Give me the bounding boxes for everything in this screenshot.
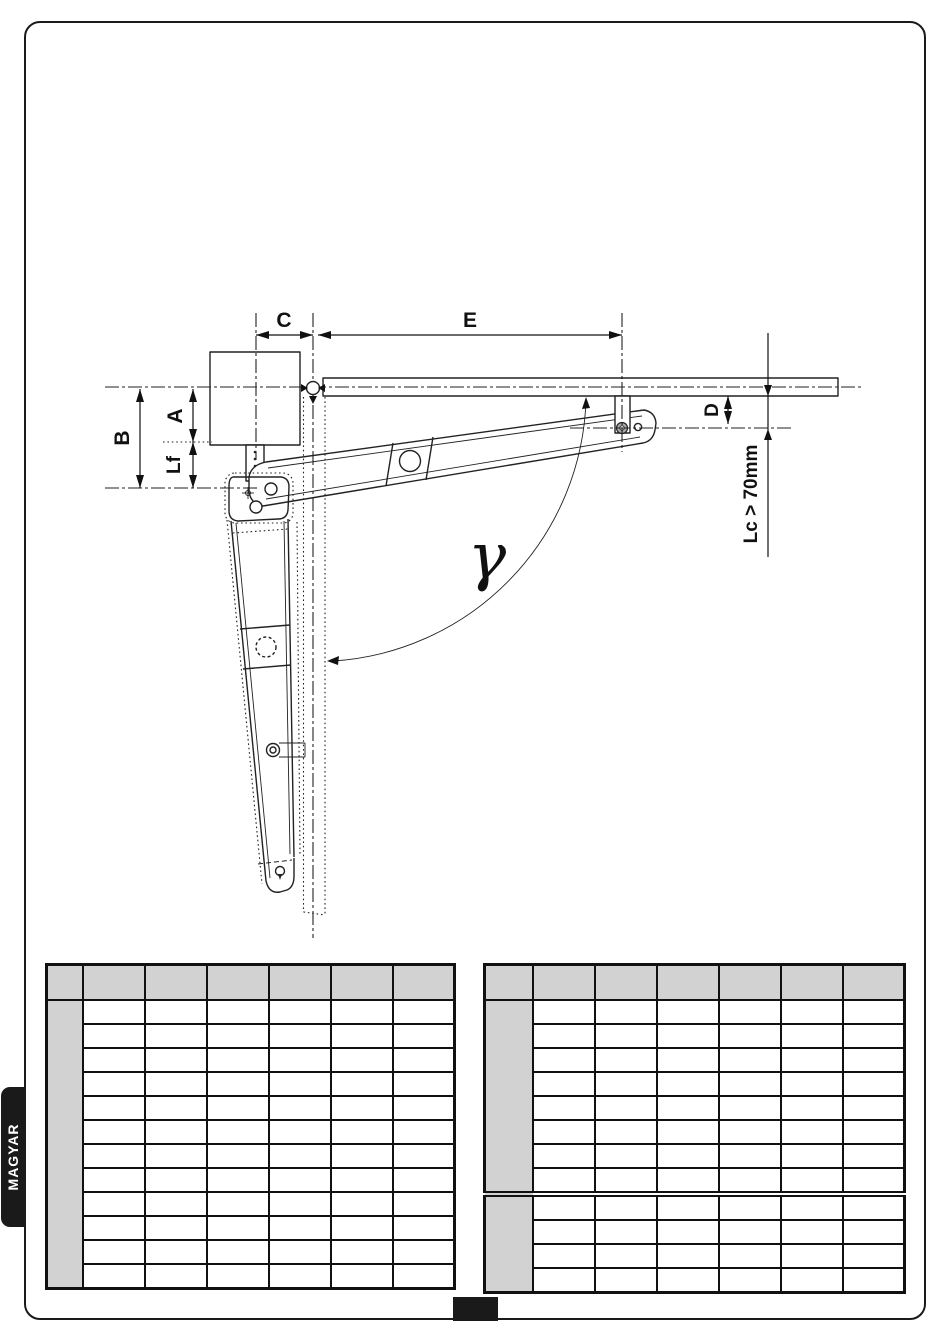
table-cell: [331, 1048, 393, 1072]
table-cell: [269, 1216, 331, 1240]
table-row: [485, 1244, 905, 1268]
dimension-table-left: [45, 963, 456, 1290]
table-row: [485, 1168, 905, 1194]
table-cell: [657, 1268, 719, 1293]
table-cell: [207, 1120, 269, 1144]
table-header-cell: [269, 965, 331, 1001]
table-cell: [269, 1048, 331, 1072]
table-row: [47, 1168, 455, 1192]
table-cell: [269, 1120, 331, 1144]
table-cell: [207, 1168, 269, 1192]
table-cell: [331, 1072, 393, 1096]
table-row: [485, 1072, 905, 1096]
table-cell: [331, 1168, 393, 1192]
table-cell: [843, 1024, 905, 1048]
table-cell: [657, 1194, 719, 1220]
table-cell: [83, 1144, 145, 1168]
table-row-group-cell: [485, 1000, 533, 1194]
dim-label-lf: Lf: [164, 455, 185, 474]
dim-label-e: E: [463, 309, 477, 332]
table-cell: [533, 1048, 595, 1072]
dim-label-b: B: [111, 430, 134, 445]
table-cell: [83, 1072, 145, 1096]
table-cell: [393, 1024, 455, 1048]
table-cell: [393, 1144, 455, 1168]
table-header-cell: [657, 965, 719, 1001]
table-cell: [145, 1216, 207, 1240]
table-row: [47, 1192, 455, 1216]
table-header-cell: [781, 965, 843, 1001]
table-row: [485, 1268, 905, 1293]
table-cell: [331, 1000, 393, 1024]
table-cell: [781, 1024, 843, 1048]
table-header-cell: [533, 965, 595, 1001]
table-cell: [393, 1192, 455, 1216]
page-number-block: [453, 1297, 498, 1321]
table-cell: [719, 1072, 781, 1096]
table-cell: [145, 1192, 207, 1216]
table-row: [47, 1144, 455, 1168]
table-cell: [595, 1072, 657, 1096]
table-cell: [83, 1120, 145, 1144]
table-cell: [207, 1240, 269, 1264]
table-cell: [719, 1244, 781, 1268]
table-cell: [145, 1048, 207, 1072]
table-cell: [595, 1120, 657, 1144]
table-cell: [781, 1072, 843, 1096]
table-cell: [207, 1096, 269, 1120]
table-cell: [145, 1168, 207, 1192]
table-cell: [269, 1072, 331, 1096]
table-cell: [719, 1144, 781, 1168]
table-cell: [657, 1168, 719, 1194]
table-row-group-cell: [485, 1194, 533, 1293]
table-row: [47, 1072, 455, 1096]
table-cell: [533, 1220, 595, 1244]
table-cell: [331, 1240, 393, 1264]
table-cell: [595, 1220, 657, 1244]
table-cell: [83, 1000, 145, 1024]
table-cell: [393, 1264, 455, 1289]
table-cell: [269, 1096, 331, 1120]
table-cell: [83, 1192, 145, 1216]
table-row: [485, 1000, 905, 1024]
table-cell: [657, 1024, 719, 1048]
dim-label-lc: Lc > 70mm: [741, 445, 762, 544]
table-cell: [843, 1096, 905, 1120]
table-cell: [843, 1120, 905, 1144]
language-tab: MAGYAR: [1, 1087, 24, 1227]
table-cell: [393, 1216, 455, 1240]
table-cell: [781, 1096, 843, 1120]
table-cell: [269, 1024, 331, 1048]
dimension-a: A: [164, 389, 193, 442]
swing-arm-vertical: [225, 473, 305, 892]
table-cell: [843, 1168, 905, 1194]
table-cell: [533, 1120, 595, 1144]
table-cell: [83, 1048, 145, 1072]
table-cell: [145, 1072, 207, 1096]
table-cell: [595, 1168, 657, 1194]
table-row: [47, 1240, 455, 1264]
table-cell: [781, 1168, 843, 1194]
table-cell: [331, 1120, 393, 1144]
table-row: [47, 1048, 455, 1072]
table-row: [485, 1096, 905, 1120]
table-cell: [145, 1120, 207, 1144]
table-header-cell: [843, 965, 905, 1001]
table-cell: [331, 1264, 393, 1289]
table-cell: [533, 1024, 595, 1048]
table-cell: [393, 1048, 455, 1072]
table-cell: [533, 1096, 595, 1120]
table-header-cell: [83, 965, 145, 1001]
table-cell: [145, 1240, 207, 1264]
language-tab-label: MAGYAR: [5, 1124, 21, 1191]
table-cell: [533, 1244, 595, 1268]
table-cell: [781, 1120, 843, 1144]
table-cell: [393, 1168, 455, 1192]
table-cell: [595, 1244, 657, 1268]
table-header-cell: [595, 965, 657, 1001]
table-cell: [843, 1144, 905, 1168]
table-cell: [269, 1240, 331, 1264]
table-cell: [533, 1000, 595, 1024]
table-cell: [331, 1024, 393, 1048]
table-cell: [533, 1268, 595, 1293]
dimension-table: [483, 963, 906, 1294]
table-cell: [331, 1096, 393, 1120]
table-cell: [657, 1096, 719, 1120]
table-header-cell: [719, 965, 781, 1001]
table-cell: [843, 1048, 905, 1072]
table-cell: [207, 1072, 269, 1096]
table-cell: [595, 1144, 657, 1168]
table-cell: [843, 1072, 905, 1096]
dimension-lf: Lf: [164, 442, 193, 488]
table-cell: [781, 1220, 843, 1244]
table-row: [47, 1216, 455, 1240]
table-cell: [719, 1194, 781, 1220]
hinge-axis: [301, 382, 325, 405]
dimension-table-right: [483, 963, 906, 1294]
table-cell: [657, 1244, 719, 1268]
table-cell: [657, 1144, 719, 1168]
table-row: [47, 1264, 455, 1289]
table-header-cell: [331, 965, 393, 1001]
table-cell: [657, 1072, 719, 1096]
table-cell: [657, 1000, 719, 1024]
dimension-table: [45, 963, 456, 1290]
installation-diagram: C E B A Lf D Lc > 70mm γ: [0, 0, 950, 960]
table-header-cell: [485, 965, 533, 1001]
table-row: [47, 1024, 455, 1048]
table-cell: [269, 1192, 331, 1216]
dimension-d: D: [702, 396, 728, 424]
table-cell: [331, 1216, 393, 1240]
table-cell: [657, 1220, 719, 1244]
table-row: [47, 1120, 455, 1144]
table-cell: [145, 1144, 207, 1168]
table-cell: [83, 1024, 145, 1048]
table-row-group-cell: [47, 1000, 83, 1289]
table-cell: [83, 1216, 145, 1240]
table-cell: [207, 1264, 269, 1289]
table-row: [485, 1120, 905, 1144]
table-cell: [533, 1072, 595, 1096]
dim-label-a: A: [164, 408, 187, 423]
table-cell: [393, 1096, 455, 1120]
dimension-e: E: [318, 309, 622, 335]
table-row: [485, 1220, 905, 1244]
table-cell: [595, 1000, 657, 1024]
table-cell: [393, 1120, 455, 1144]
table-cell: [719, 1168, 781, 1194]
table-cell: [781, 1194, 843, 1220]
dimension-lc: Lc > 70mm: [741, 333, 772, 557]
table-cell: [331, 1144, 393, 1168]
table-cell: [657, 1048, 719, 1072]
table-row: [485, 1048, 905, 1072]
table-cell: [83, 1240, 145, 1264]
table-cell: [207, 1048, 269, 1072]
table-cell: [83, 1096, 145, 1120]
table-header-cell: [145, 965, 207, 1001]
table-cell: [145, 1264, 207, 1289]
table-cell: [533, 1168, 595, 1194]
table-cell: [843, 1244, 905, 1268]
table-cell: [595, 1096, 657, 1120]
angle-label-gamma: γ: [468, 520, 507, 594]
dimension-b: B: [111, 389, 140, 488]
table-cell: [207, 1144, 269, 1168]
table-cell: [719, 1048, 781, 1072]
table-cell: [145, 1000, 207, 1024]
table-row: [47, 1000, 455, 1024]
table-cell: [657, 1120, 719, 1144]
table-cell: [595, 1194, 657, 1220]
table-cell: [719, 1096, 781, 1120]
table-cell: [595, 1048, 657, 1072]
table-cell: [533, 1144, 595, 1168]
table-cell: [781, 1244, 843, 1268]
table-cell: [207, 1000, 269, 1024]
swing-arm: [249, 396, 656, 506]
table-row: [47, 1096, 455, 1120]
table-cell: [83, 1168, 145, 1192]
table-cell: [781, 1048, 843, 1072]
table-cell: [207, 1216, 269, 1240]
table-cell: [781, 1268, 843, 1293]
dim-label-c: C: [276, 309, 291, 332]
table-cell: [207, 1024, 269, 1048]
table-cell: [719, 1268, 781, 1293]
table-cell: [595, 1024, 657, 1048]
table-cell: [719, 1000, 781, 1024]
table-cell: [145, 1024, 207, 1048]
table-cell: [843, 1000, 905, 1024]
table-cell: [781, 1144, 843, 1168]
table-cell: [843, 1268, 905, 1293]
table-cell: [145, 1096, 207, 1120]
table-header-cell: [47, 965, 83, 1001]
table-cell: [843, 1220, 905, 1244]
table-row: [485, 1144, 905, 1168]
table-cell: [719, 1220, 781, 1244]
table-cell: [207, 1192, 269, 1216]
table-header-cell: [207, 965, 269, 1001]
table-cell: [269, 1264, 331, 1289]
table-cell: [595, 1268, 657, 1293]
table-header-cell: [393, 965, 455, 1001]
table-cell: [781, 1000, 843, 1024]
table-cell: [393, 1240, 455, 1264]
table-cell: [393, 1072, 455, 1096]
table-row: [485, 1024, 905, 1048]
dim-label-d: D: [702, 403, 723, 417]
table-cell: [331, 1192, 393, 1216]
table-cell: [269, 1000, 331, 1024]
table-cell: [719, 1120, 781, 1144]
table-cell: [269, 1168, 331, 1192]
table-cell: [83, 1264, 145, 1289]
table-row: [485, 1194, 905, 1220]
dimension-c: C: [256, 309, 313, 335]
table-cell: [719, 1024, 781, 1048]
table-cell: [269, 1144, 331, 1168]
table-cell: [843, 1194, 905, 1220]
table-cell: [533, 1194, 595, 1220]
table-cell: [393, 1000, 455, 1024]
